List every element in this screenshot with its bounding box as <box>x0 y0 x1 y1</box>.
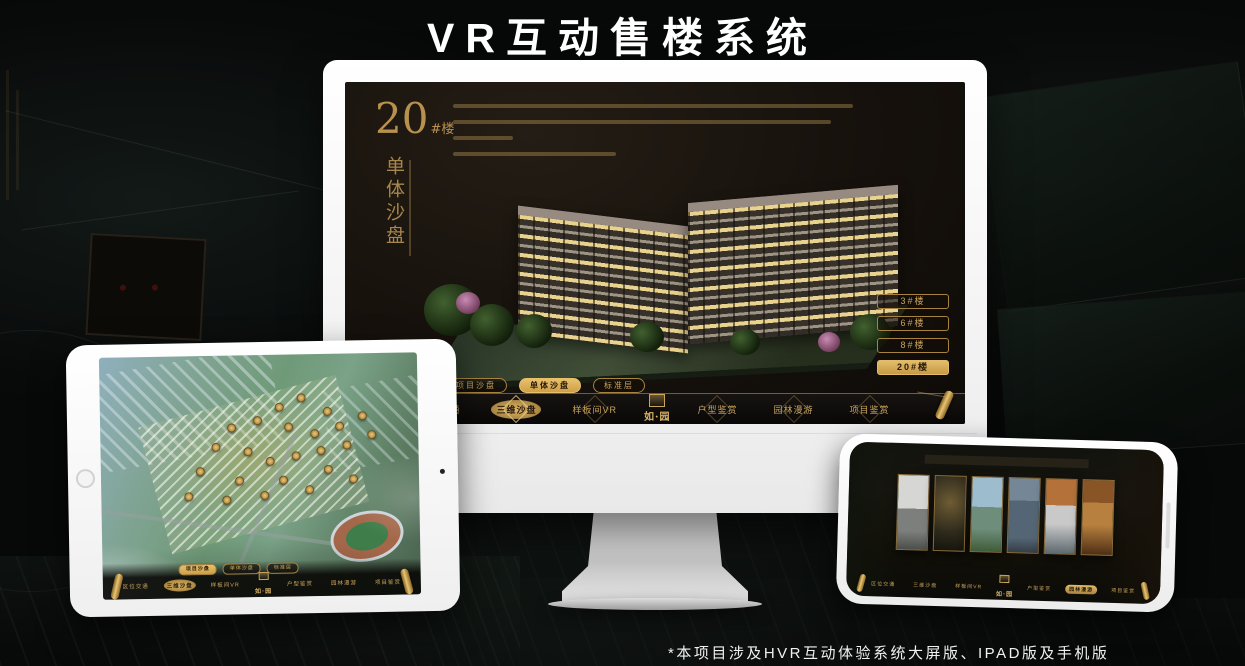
gallery-panel[interactable] <box>933 475 967 552</box>
building-marker[interactable] <box>323 465 332 474</box>
building-marker[interactable] <box>367 430 376 439</box>
nav-item[interactable]: 项目鉴赏 <box>372 576 404 589</box>
tablet-main-nav: 区位交通三维沙盘样板间VR 如·园 户型鉴赏园林漫游项目鉴赏 <box>107 571 417 596</box>
bg-gold-text-strip <box>6 70 9 200</box>
nav-item[interactable]: 三维沙盘 <box>909 580 941 590</box>
building-selector: 3#楼6#楼8#楼20#楼 <box>877 294 953 382</box>
building-marker[interactable] <box>235 476 244 485</box>
building-marker[interactable] <box>196 467 205 476</box>
building-marker[interactable] <box>297 393 306 402</box>
nav-item[interactable]: 园林漫游 <box>769 400 819 419</box>
building-marker[interactable] <box>266 456 275 465</box>
building-button[interactable]: 8#楼 <box>877 338 949 353</box>
nav-item[interactable]: 区位交通 <box>120 580 152 593</box>
building-model-render <box>430 164 910 389</box>
building-marker[interactable] <box>253 416 262 425</box>
description-line <box>453 136 513 140</box>
nav-group-right: 户型鉴赏园林漫游项目鉴赏 <box>692 400 894 419</box>
building-marker[interactable] <box>227 423 236 432</box>
scroll-handle-icon[interactable] <box>1140 581 1150 600</box>
tree-decor <box>630 322 664 352</box>
poster-canvas: VR互动售楼系统 20#楼 单体沙盘 <box>0 0 1245 666</box>
building-marker[interactable] <box>244 447 253 456</box>
building-marker[interactable] <box>260 490 269 499</box>
gallery-panel[interactable] <box>1007 477 1041 554</box>
gallery-panel[interactable] <box>970 476 1004 553</box>
building-marker[interactable] <box>317 446 326 455</box>
bg-photo-right-top <box>978 61 1245 312</box>
view-tabs: 项目沙盘单体沙盘标准层 <box>445 378 645 393</box>
nav-item[interactable]: 样板间VR <box>208 578 243 591</box>
gallery-panel[interactable] <box>1081 479 1115 556</box>
building-marker[interactable] <box>284 422 293 431</box>
nav-item[interactable]: 样板间VR <box>567 400 622 419</box>
bg-gold-text-strip <box>16 90 19 190</box>
brand-emblem-icon <box>649 394 665 407</box>
building-marker[interactable] <box>357 411 366 420</box>
description-line <box>453 152 616 156</box>
subtitle-english-line <box>409 160 411 256</box>
gallery-panel[interactable] <box>896 474 930 551</box>
monitor-base <box>548 598 762 610</box>
description-line <box>453 120 831 124</box>
brand-logo-text: 如·园 <box>996 590 1013 597</box>
view-tab[interactable]: 标准层 <box>593 378 645 393</box>
view-tab[interactable]: 项目沙盘 <box>179 564 217 576</box>
building-marker[interactable] <box>279 476 288 485</box>
building-button[interactable]: 3#楼 <box>877 294 949 309</box>
brand-logo-text: 如·园 <box>644 412 670 423</box>
camera-icon <box>440 469 445 474</box>
nav-item[interactable]: 园林漫游 <box>1065 584 1097 594</box>
building-number-suffix: #楼 <box>430 122 454 137</box>
building-subtitle-vertical: 单体沙盘 <box>381 156 408 248</box>
building-marker[interactable] <box>335 421 344 430</box>
phone-gallery <box>896 474 1115 556</box>
building-marker[interactable] <box>291 451 300 460</box>
brand-logo: 如·园 <box>255 571 273 596</box>
flower-tree-decor <box>456 292 480 314</box>
building-marker[interactable] <box>322 407 331 416</box>
building-marker[interactable] <box>222 496 231 505</box>
tree-decor <box>730 329 760 355</box>
scroll-handle-icon[interactable] <box>856 573 867 592</box>
tablet-device: 项目沙盘单体沙盘标准层 区位交通三维沙盘样板间VR 如·园 户型鉴赏园林漫游项目… <box>66 339 461 618</box>
building-number: 20 <box>375 94 428 143</box>
description-lines <box>453 104 883 168</box>
building-marker[interactable] <box>305 485 314 494</box>
building-marker[interactable] <box>349 474 358 483</box>
building-button[interactable]: 6#楼 <box>877 316 949 331</box>
brand-logo: 如·园 <box>996 574 1014 599</box>
nav-item[interactable]: 三维沙盘 <box>164 579 196 592</box>
nav-item[interactable]: 户型鉴赏 <box>692 400 742 419</box>
building-marker[interactable] <box>184 492 193 501</box>
page-title: VR互动售楼系统 <box>0 4 1245 64</box>
building-marker[interactable] <box>310 429 319 438</box>
courtyard-lintel-decor <box>925 454 1088 468</box>
nav-item[interactable]: 户型鉴赏 <box>1023 583 1055 593</box>
tablet-screen: 项目沙盘单体沙盘标准层 区位交通三维沙盘样板间VR 如·园 户型鉴赏园林漫游项目… <box>99 352 421 600</box>
nav-item[interactable]: 园林漫游 <box>328 576 360 589</box>
description-line <box>453 104 853 108</box>
view-tab[interactable]: 单体沙盘 <box>519 378 581 393</box>
phone-screen: 区位交通三维沙盘样板间VR 如·园 户型鉴赏园林漫游项目鉴赏 <box>846 442 1164 605</box>
footnote-text: *本项目涉及HVR互动体验系统大屏版、IPAD版及手机版 <box>668 642 1109 663</box>
scroll-roll-icon[interactable] <box>934 389 954 420</box>
flower-tree-decor <box>818 332 840 352</box>
building-marker[interactable] <box>275 403 284 412</box>
gallery-panel[interactable] <box>1044 478 1078 555</box>
bg-map-line <box>21 191 298 231</box>
building-marker[interactable] <box>342 441 351 450</box>
monitor-stand <box>562 512 748 602</box>
building-marker[interactable] <box>212 443 221 452</box>
nav-item[interactable]: 区位交通 <box>867 579 899 589</box>
nav-item[interactable]: 样板间VR <box>951 581 986 591</box>
nav-item[interactable]: 户型鉴赏 <box>284 577 316 590</box>
scroll-handle-icon[interactable] <box>400 568 414 595</box>
building-button[interactable]: 20#楼 <box>877 360 949 375</box>
phone-device: 区位交通三维沙盘样板间VR 如·园 户型鉴赏园林漫游项目鉴赏 <box>836 433 1179 612</box>
nav-item[interactable]: 项目鉴赏 <box>845 400 895 419</box>
building-title: 20#楼 <box>375 98 454 140</box>
bg-photo-right-mid <box>997 291 1245 460</box>
bg-map-line <box>5 110 325 191</box>
brand-emblem-icon <box>258 571 268 579</box>
bg-certificate-frame <box>85 233 206 341</box>
nav-item[interactable]: 项目鉴赏 <box>1107 585 1139 595</box>
tree-decor <box>516 314 552 348</box>
nav-item[interactable]: 三维沙盘 <box>491 400 541 419</box>
brand-emblem-icon <box>1000 574 1010 582</box>
tablet-bottom-bar: 项目沙盘单体沙盘标准层 区位交通三维沙盘样板间VR 如·园 户型鉴赏园林漫游项目… <box>102 558 421 600</box>
brand-logo: 如·园 <box>644 394 670 424</box>
brand-logo-text: 如·园 <box>255 587 272 594</box>
